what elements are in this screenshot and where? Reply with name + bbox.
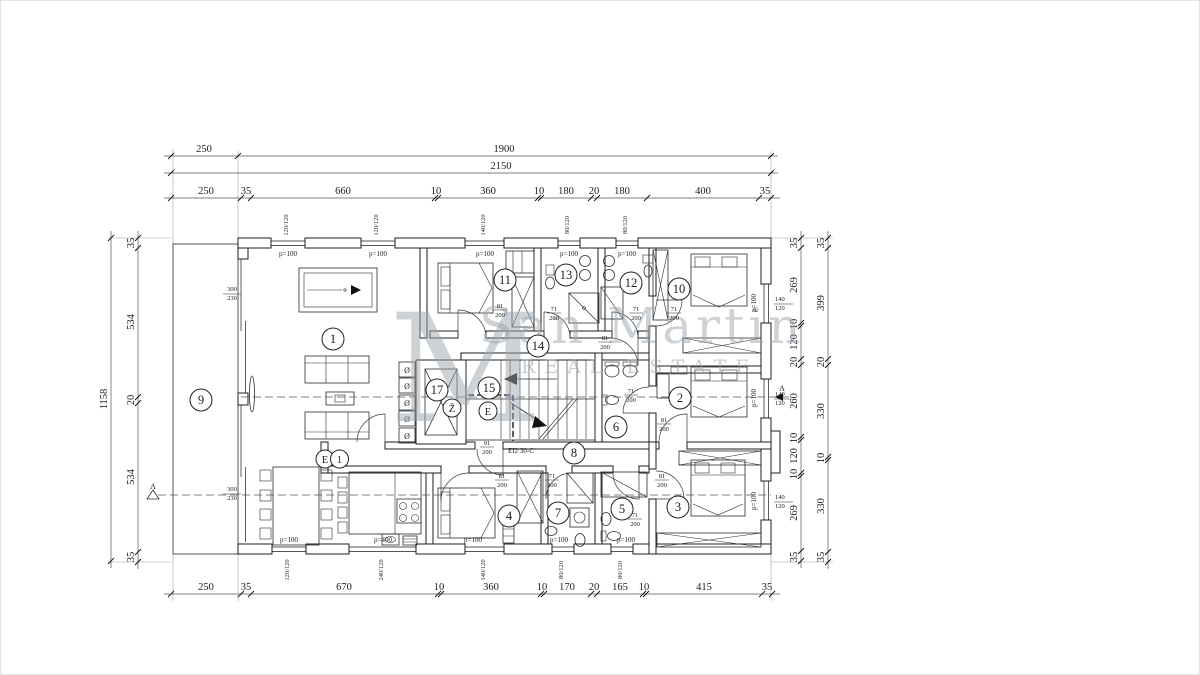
dim-value: 10 (789, 433, 800, 444)
dim-value: 35 (816, 238, 827, 249)
room-label-1: 1 (322, 328, 344, 350)
dim-value: 330 (816, 498, 827, 514)
parapet-label: p=400 (374, 536, 392, 544)
dim-value: 10 (434, 582, 445, 593)
dim-value: 269 (789, 505, 800, 521)
door-width: 71 (632, 512, 639, 519)
dim-value: 399 (816, 295, 827, 311)
dim-value: 120 (789, 448, 800, 464)
room-number: 6 (613, 420, 619, 434)
window-size: 140/120 (480, 214, 487, 235)
dim-value: 20 (589, 186, 600, 197)
entrance-number: 1 (337, 455, 342, 466)
dim-value: 35 (241, 186, 252, 197)
door-width: 71 (628, 388, 635, 395)
dim-value: 534 (126, 313, 137, 330)
table-marker (351, 285, 361, 295)
dimensions-left: 1158 35 534 20 534 35 (99, 238, 137, 563)
door-height: 200 (549, 315, 559, 322)
parapet-label: p=100 (750, 492, 758, 510)
door-height: 200 (547, 482, 557, 489)
dim-value: 10 (639, 582, 650, 593)
door-width: 71 (549, 473, 556, 480)
window-size: 120/120 (283, 214, 290, 235)
dim-value: 1158 (99, 389, 110, 410)
door-width: 71 (551, 306, 558, 313)
dim-value: 10 (537, 582, 548, 593)
room-label-9: 9 (190, 389, 212, 411)
room-label-11: 11 (494, 269, 516, 291)
stove (397, 499, 421, 523)
stair-letter: E (485, 407, 491, 418)
door-height: 200 (657, 482, 667, 489)
window-size: 120 (775, 503, 785, 510)
window-size: 120 (775, 305, 785, 312)
window-size: 80/120 (617, 561, 624, 579)
room-label-12: 12 (620, 272, 642, 294)
dim-value: 20 (589, 582, 600, 593)
dim-value: 35 (762, 582, 773, 593)
door-width: 71 (671, 306, 678, 313)
door-width: 71 (633, 306, 640, 313)
dim-value: 660 (335, 186, 351, 197)
dim-value: 360 (483, 582, 499, 593)
window-size: 300 (227, 486, 237, 493)
dimensions-top: 250 1900 2150 250 35 660 10 360 10 180 2… (196, 144, 770, 197)
room-label-13: 13 (555, 264, 577, 286)
parapet-label: p=100 (750, 389, 758, 407)
window-size: 80/120 (564, 216, 571, 234)
window-size: 230 (227, 495, 237, 502)
room-number: 7 (555, 506, 561, 520)
room-label-2: 2 (669, 387, 691, 409)
entrance-letter: E (322, 455, 328, 466)
parapet-label: p=100 (617, 536, 635, 544)
door-height: 200 (482, 449, 492, 456)
elevator-letter: Ž (449, 403, 455, 415)
parapet-label: p=100 (750, 294, 758, 312)
fire-door-label: EI2 30-C (508, 447, 534, 455)
room-label-4: 4 (498, 505, 520, 527)
room-number: 13 (560, 268, 573, 282)
dim-value: 35 (126, 552, 137, 563)
section-arrow (147, 490, 159, 499)
parapet-label: p=100 (279, 250, 297, 258)
door-width: 81 (602, 335, 609, 342)
window-size: 120 (775, 400, 785, 407)
room-number: 2 (677, 391, 683, 405)
room-label-14: 14 (527, 335, 549, 357)
dimensions-right: 35 269 10 120 20 260 10 120 10 269 35 35… (789, 238, 827, 563)
parapet-label: p=100 (618, 250, 636, 258)
room-number: 15 (483, 381, 496, 395)
bed (438, 488, 495, 538)
door-width: 81 (661, 417, 668, 424)
room-number: 8 (571, 446, 577, 460)
dim-value: 20 (816, 357, 827, 368)
parapet-label: p=100 (280, 536, 298, 544)
dim-value: 10 (431, 186, 442, 197)
parapet-label: p=100 (369, 250, 387, 258)
window-size: 140 (775, 391, 785, 398)
dim-value: 35 (241, 582, 252, 593)
dim-value: 165 (612, 582, 628, 593)
dim-value: 360 (480, 186, 496, 197)
room-label-7: 7 (547, 502, 569, 524)
dim-value: 2150 (491, 161, 512, 172)
dim-value: 10 (534, 186, 545, 197)
dim-value: 35 (789, 238, 800, 249)
door-width: 81 (497, 303, 504, 310)
room-number: 12 (625, 276, 638, 290)
room-label-15: 15 (478, 377, 500, 399)
dim-value: 250 (196, 144, 212, 155)
room-number: 5 (619, 502, 625, 516)
window-size: 140 (775, 296, 785, 303)
door-height: 200 (669, 315, 679, 322)
dim-value: 35 (126, 238, 137, 249)
washer (570, 508, 589, 527)
tv (250, 376, 255, 412)
room-label-5: 5 (611, 498, 633, 520)
dim-value: 269 (789, 277, 800, 293)
watermark-tagline: REAL ESTATE (521, 356, 758, 378)
dim-value: 260 (789, 393, 800, 409)
floor-plan-drawing: 250 1900 2150 250 35 660 10 360 10 180 2… (1, 1, 1200, 675)
dim-value: 250 (198, 186, 214, 197)
dim-value: 534 (126, 468, 137, 485)
dim-value: 400 (695, 186, 711, 197)
window-size: 120/120 (373, 214, 380, 235)
room-number: 10 (673, 282, 686, 296)
window-size: 120/120 (284, 559, 291, 580)
dim-value: 415 (696, 582, 712, 593)
room-number: 9 (198, 393, 204, 407)
dim-value: 10 (816, 453, 827, 464)
dim-value: 170 (559, 582, 575, 593)
window-size: 240/120 (378, 559, 385, 580)
window-size: 300 (227, 286, 237, 293)
dim-value: 180 (614, 186, 630, 197)
stair-core-marker: E (479, 402, 497, 420)
door-width: 81 (499, 473, 506, 480)
door-height: 200 (630, 521, 640, 528)
dim-value: 330 (816, 403, 827, 419)
room-label-8: 8 (563, 442, 585, 464)
door-height: 200 (600, 344, 610, 351)
dimensions-bottom: 250 35 670 10 360 10 170 20 165 10 415 3… (198, 582, 772, 593)
dim-value: 20 (126, 395, 137, 406)
dim-value: 10 (789, 469, 800, 480)
window-size: 140 (775, 494, 785, 501)
room-number: 1 (330, 332, 336, 346)
parapet-label: p=100 (550, 536, 568, 544)
room-number: 11 (499, 273, 511, 287)
door-height: 200 (495, 312, 505, 319)
floor-plan-page: 250 1900 2150 250 35 660 10 360 10 180 2… (0, 0, 1200, 675)
window-size: 80/120 (558, 561, 565, 579)
door-height: 200 (631, 315, 641, 322)
door-height: 200 (626, 397, 636, 404)
room-number: 17 (431, 383, 444, 397)
window-size: 230 (227, 295, 237, 302)
room-label-6: 6 (605, 416, 627, 438)
unit-entrance-marker: E1 (316, 450, 349, 468)
dim-value: 20 (789, 357, 800, 368)
room-number: 4 (506, 509, 513, 523)
elevator-marker: Ž (443, 399, 461, 417)
parapet-label: p=100 (464, 536, 482, 544)
dim-value: 250 (198, 582, 214, 593)
room-number: 14 (532, 339, 545, 353)
window-size: 140/120 (480, 559, 487, 580)
dim-value: 1900 (494, 144, 515, 155)
room-label-3: 3 (667, 496, 689, 518)
parapet-label: p=100 (476, 250, 494, 258)
room-label-17: 17 (426, 379, 448, 401)
door-width: 81 (659, 473, 666, 480)
room-number: 3 (675, 500, 681, 514)
dim-value: 180 (558, 186, 574, 197)
door-height: 200 (497, 482, 507, 489)
bed (691, 460, 745, 516)
dim-value: 35 (760, 186, 771, 197)
door-width: 91 (484, 440, 491, 447)
dim-value: 35 (789, 552, 800, 563)
dim-value: 670 (336, 582, 352, 593)
room-label-10: 10 (668, 278, 690, 300)
window-size: 80/120 (622, 216, 629, 234)
parapet-label: p=100 (560, 250, 578, 258)
door-height: 200 (659, 426, 669, 433)
dim-value: 35 (816, 552, 827, 563)
